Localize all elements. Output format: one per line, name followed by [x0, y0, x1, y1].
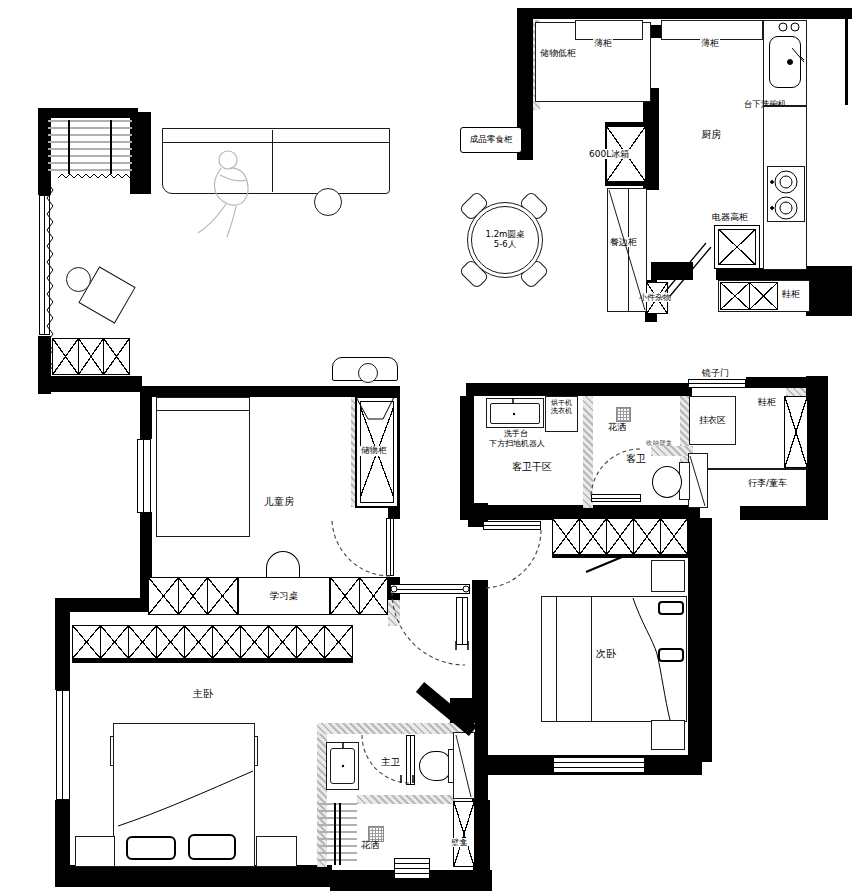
door-arcs [332, 449, 640, 783]
curtain-zigzag [47, 182, 53, 374]
cabinet-diagonals [456, 190, 705, 797]
person-figure [198, 151, 248, 237]
stove-burners [771, 171, 797, 219]
blanket-line [633, 598, 670, 720]
blanket-line [118, 771, 253, 826]
plan-linework [0, 0, 852, 891]
basin-drain [342, 765, 344, 767]
basin-drain [513, 413, 515, 415]
door-hinge [463, 586, 469, 592]
diagonal-wall [420, 687, 473, 731]
curtain-zigzag-top [58, 174, 130, 178]
door-hinge [391, 586, 397, 592]
sink-faucet [779, 23, 804, 65]
floor-plan: 成品零食柜 600L冰箱 餐边柜 1.2m圆桌 5-6人 小件杂物 储物低柜 薄… [0, 0, 852, 891]
kitchen-door [665, 243, 711, 296]
wardrobe-tick [586, 557, 622, 572]
tv-stand [356, 397, 394, 419]
